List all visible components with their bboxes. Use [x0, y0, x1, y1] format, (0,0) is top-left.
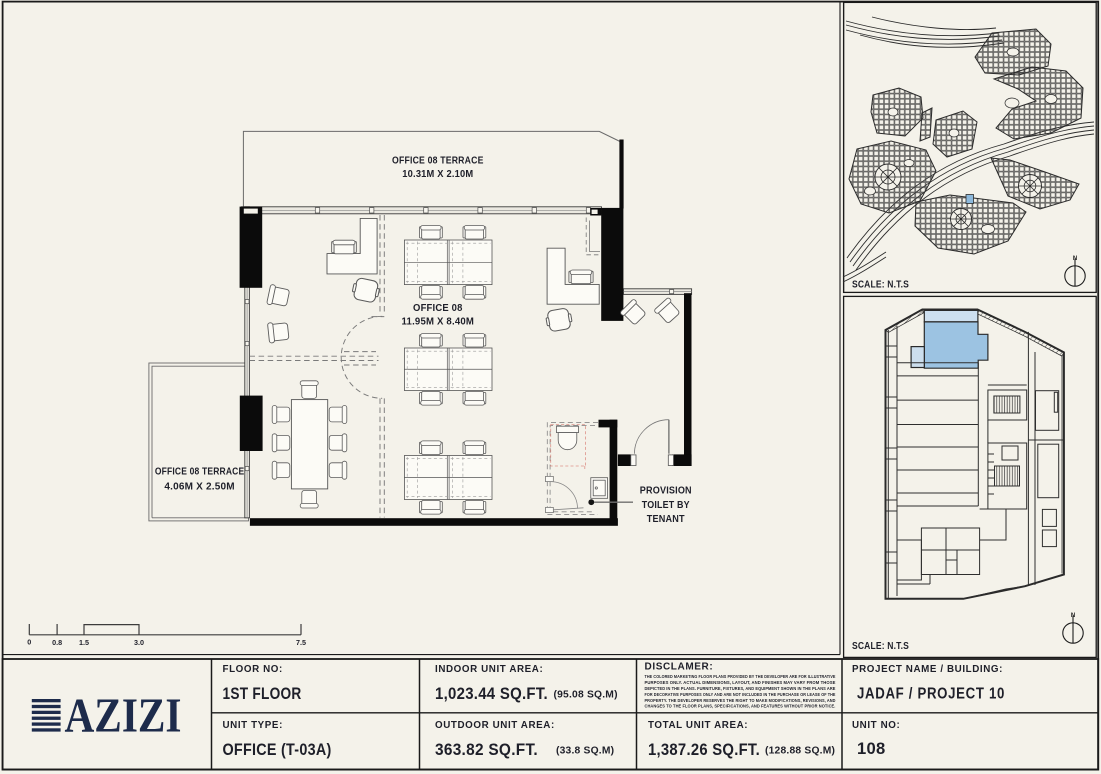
svg-text:363.82 SQ.FT.: 363.82 SQ.FT. — [435, 740, 538, 759]
svg-text:PURPOSES ONLY. ACTUAL DIMENSIO: PURPOSES ONLY. ACTUAL DIMENSIONS, LAYOUT… — [645, 680, 836, 685]
svg-text:0.8: 0.8 — [52, 638, 62, 647]
svg-text:4.06M X 2.50M: 4.06M X 2.50M — [164, 481, 235, 492]
svg-text:THE COLORED MARKETING FLOOR PL: THE COLORED MARKETING FLOOR PLANS PROVID… — [645, 674, 836, 679]
svg-text:(95.08 SQ.M): (95.08 SQ.M) — [554, 690, 618, 701]
svg-text:TENANT: TENANT — [647, 514, 686, 525]
svg-text:0: 0 — [27, 638, 31, 647]
svg-text:UNIT TYPE:: UNIT TYPE: — [223, 720, 283, 731]
svg-text:N: N — [1073, 256, 1077, 262]
svg-text:DISCLAMER:: DISCLAMER: — [645, 662, 714, 673]
svg-text:PROPERTY. THE DEVELOPER RESERV: PROPERTY. THE DEVELOPER RESERVES THE RIG… — [645, 698, 836, 703]
svg-text:OFFICE (T-03A): OFFICE (T-03A) — [223, 740, 332, 759]
svg-text:(128.88 SQ.M): (128.88 SQ.M) — [765, 746, 835, 757]
svg-text:FOR DECORATIVE PURPOSES ONLY A: FOR DECORATIVE PURPOSES ONLY AND ARE NOT… — [645, 692, 836, 697]
svg-text:SCALE: N.T.S: SCALE: N.T.S — [852, 280, 909, 291]
svg-text:1ST FLOOR: 1ST FLOOR — [223, 684, 302, 703]
svg-text:SCALE: N.T.S: SCALE: N.T.S — [852, 641, 909, 652]
svg-text:108: 108 — [857, 739, 886, 758]
svg-text:INDOOR UNIT AREA:: INDOOR UNIT AREA: — [435, 664, 543, 675]
svg-text:UNIT NO:: UNIT NO: — [852, 720, 900, 731]
svg-text:PROVISION: PROVISION — [640, 486, 692, 497]
svg-text:FLOOR NO:: FLOOR NO: — [223, 664, 283, 675]
svg-text:1,387.26 SQ.FT.: 1,387.26 SQ.FT. — [648, 740, 760, 759]
svg-text:7.5: 7.5 — [296, 638, 306, 647]
svg-text:AZIZI: AZIZI — [65, 688, 182, 743]
svg-text:N: N — [1071, 613, 1075, 619]
svg-text:11.95M X 8.40M: 11.95M X 8.40M — [402, 317, 475, 328]
svg-text:(33.8 SQ.M): (33.8 SQ.M) — [556, 746, 614, 757]
svg-text:1.5: 1.5 — [79, 638, 89, 647]
svg-text:OFFICE 08 TERRACE: OFFICE 08 TERRACE — [392, 155, 484, 166]
svg-text:TOTAL UNIT AREA:: TOTAL UNIT AREA: — [648, 720, 748, 731]
svg-text:OFFICE 08: OFFICE 08 — [413, 303, 463, 314]
svg-text:1,023.44 SQ.FT.: 1,023.44 SQ.FT. — [435, 684, 548, 703]
svg-text:CHANGES TO THE FLOOR PLANS, SP: CHANGES TO THE FLOOR PLANS, SPECIFICATIO… — [645, 704, 836, 709]
svg-text:10.31M X 2.10M: 10.31M X 2.10M — [402, 169, 473, 180]
svg-text:JADAF / PROJECT 10: JADAF / PROJECT 10 — [857, 686, 1005, 703]
svg-text:PROJECT NAME / BUILDING:: PROJECT NAME / BUILDING: — [852, 664, 1003, 675]
svg-text:OUTDOOR UNIT AREA:: OUTDOOR UNIT AREA: — [435, 720, 555, 731]
svg-text:3.0: 3.0 — [134, 638, 144, 647]
svg-text:OFFICE 08 TERRACE: OFFICE 08 TERRACE — [155, 467, 245, 478]
svg-text:TOILET BY: TOILET BY — [642, 500, 690, 511]
svg-text:DEPICTED IN THE PLANS. FURNITU: DEPICTED IN THE PLANS. FURNITURE, FIXTUR… — [645, 686, 836, 691]
